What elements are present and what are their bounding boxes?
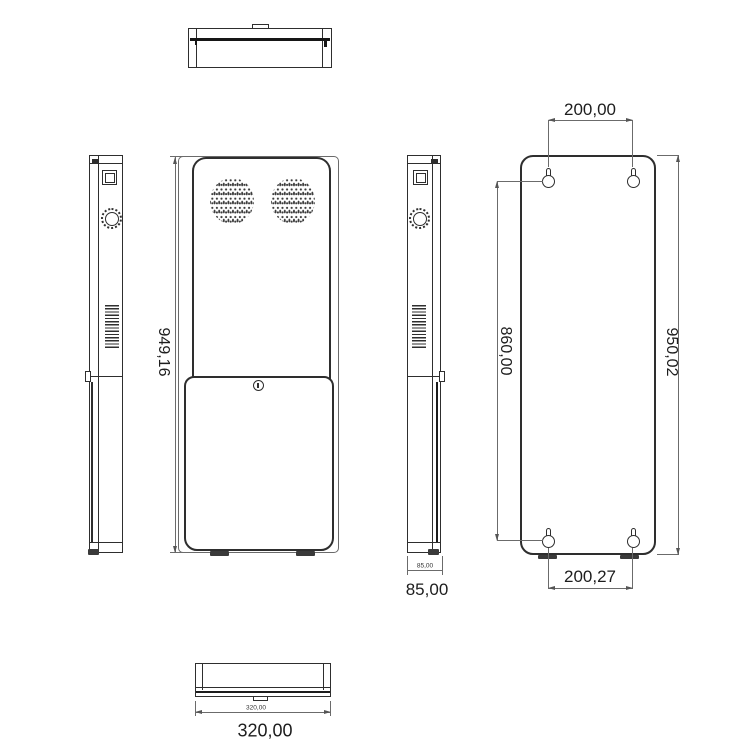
bottom-band-lower [196, 691, 330, 693]
left-side-door-seam [90, 376, 122, 377]
dim-text-bottom-hole-spacing: 200,27 [564, 567, 616, 587]
top-inner-line-right [322, 29, 323, 67]
dim-ext-side-left [407, 556, 408, 575]
dim-arrow [495, 181, 499, 188]
speaker-grille-left-icon [210, 178, 254, 224]
left-side-foot [88, 549, 99, 555]
right-bracket-bar [436, 382, 438, 543]
dim-text-front-height: 949,16 [154, 328, 172, 377]
top-view-outline [188, 28, 332, 68]
dim-arrow [548, 118, 555, 122]
top-inner-line-left [196, 29, 197, 67]
back-panel [520, 155, 656, 555]
dim-arrow [173, 157, 177, 164]
dim-ext-bottom-right [632, 548, 633, 589]
dim-text-top-hole-spacing: 200,00 [564, 100, 616, 120]
keyhole-top-left-icon [542, 175, 555, 188]
dim-line-top-hole-spacing [548, 120, 633, 121]
dim-text-base-width-small: 320,00 [246, 705, 266, 712]
top-tab [252, 24, 269, 29]
top-hook-right [324, 41, 327, 47]
side-vent-grille [412, 305, 426, 349]
dim-arrow [626, 586, 633, 590]
dim-ext-top-left [548, 120, 549, 167]
door-lock-icon [253, 380, 264, 391]
side-display-window [102, 170, 117, 185]
left-bracket-bar [91, 382, 93, 543]
left-side-base-line [90, 542, 122, 543]
dim-line-side-depth [407, 570, 443, 571]
keyhole-bottom-right-icon [627, 535, 640, 548]
right-side-inner-line [432, 156, 433, 552]
side-knob-inner [413, 212, 427, 226]
speaker-grille-right-icon [271, 178, 315, 224]
side-vent-grille [105, 305, 119, 349]
bottom-notch [253, 696, 268, 701]
side-knob-inner [105, 212, 119, 226]
dim-line-front-height [175, 157, 176, 553]
dim-arrow [548, 586, 555, 590]
dim-arrow [195, 710, 202, 714]
back-foot-right [620, 555, 639, 559]
dim-text-side-depth-small: 85,00 [417, 563, 433, 570]
dim-text-hole-span: 860,00 [496, 327, 514, 376]
left-side-inner-line [98, 156, 99, 552]
side-display-window [413, 170, 428, 185]
keyhole-top-right-icon [627, 175, 640, 188]
dim-arrow [173, 546, 177, 553]
technical-drawing-canvas: 949,16 85,00 85,00 [0, 0, 750, 750]
dim-arrow [324, 710, 331, 714]
service-door [184, 376, 334, 551]
right-mount-tab [439, 371, 445, 382]
right-side-door-seam [408, 376, 440, 377]
dim-line-base-width [195, 712, 331, 713]
dim-text-back-height: 950,02 [662, 328, 680, 377]
dim-ext-hole-span-top [497, 181, 543, 182]
top-hook-left [195, 41, 197, 45]
front-foot-left [210, 551, 229, 556]
dim-text-side-depth: 85,00 [406, 580, 449, 600]
left-mount-tab [85, 371, 91, 382]
dim-ext-bottom-left [548, 548, 549, 589]
dim-ext-hole-span-bottom [497, 540, 543, 541]
dim-line-bottom-hole-spacing [548, 588, 633, 589]
dim-arrow [676, 548, 680, 555]
dim-text-base-width: 320,00 [237, 721, 292, 742]
keyhole-bottom-left-icon [542, 535, 555, 548]
bottom-band-upper [196, 687, 330, 688]
dim-arrow [676, 155, 680, 162]
dim-ext-top-right [632, 120, 633, 167]
dim-ext-side-right [442, 556, 443, 575]
front-foot-right [296, 551, 315, 556]
top-thick-edge [190, 38, 330, 41]
right-side-foot [428, 549, 439, 555]
right-side-base-line [408, 542, 440, 543]
dim-arrow [495, 534, 499, 541]
